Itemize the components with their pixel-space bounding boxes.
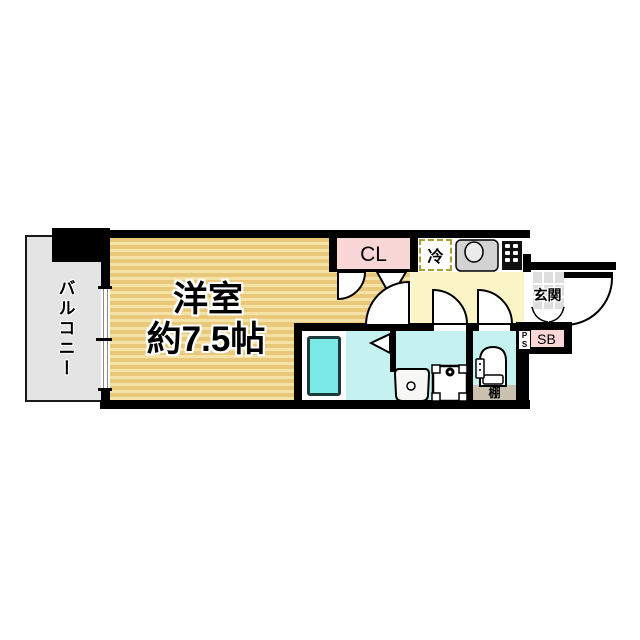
kitchen-corridor-floor — [411, 272, 524, 323]
shelf-label: 棚 — [473, 385, 516, 400]
refrigerator-label: 冷 — [419, 240, 452, 270]
closet-label: CL — [337, 240, 410, 269]
bathtub-icon — [307, 336, 341, 396]
balcony-label: バルコニー — [47, 266, 83, 391]
wall-shoebox-bottom — [528, 347, 572, 354]
wall-closet-right — [410, 238, 418, 272]
door-opening-toilet — [479, 323, 510, 331]
stove-icon — [502, 241, 522, 270]
floor-plan: バルコニー 洋室 約7.5帖 CL 冷 玄関 SB PS 棚 — [0, 0, 640, 640]
closet-front-line — [337, 269, 410, 272]
window-tick-top — [98, 286, 112, 289]
shoe-box-label: SB — [529, 330, 564, 347]
entrance-door-swing-icon — [565, 278, 612, 325]
wall-washroom-toilet — [466, 331, 473, 402]
wall-top — [52, 230, 530, 238]
kitchen-sink-unit-icon — [456, 240, 498, 271]
wall-closet-left — [329, 238, 337, 272]
room-name-label: 洋室 — [138, 277, 278, 315]
kitchen-sink-bowl-icon — [465, 242, 483, 262]
pipe-space-label: PS — [518, 331, 531, 349]
entrance-label: 玄関 — [529, 286, 566, 304]
room-size-label: 約7.5帖 — [111, 317, 301, 355]
door-opening-washroom — [434, 323, 466, 331]
window-tick-mid — [96, 338, 112, 341]
wall-washroom-partial — [390, 331, 396, 372]
wall-left-upper — [101, 262, 110, 288]
entrance-door-leaf — [564, 272, 613, 278]
wall-entrance-top — [523, 262, 616, 270]
washroom-floor — [346, 331, 466, 402]
